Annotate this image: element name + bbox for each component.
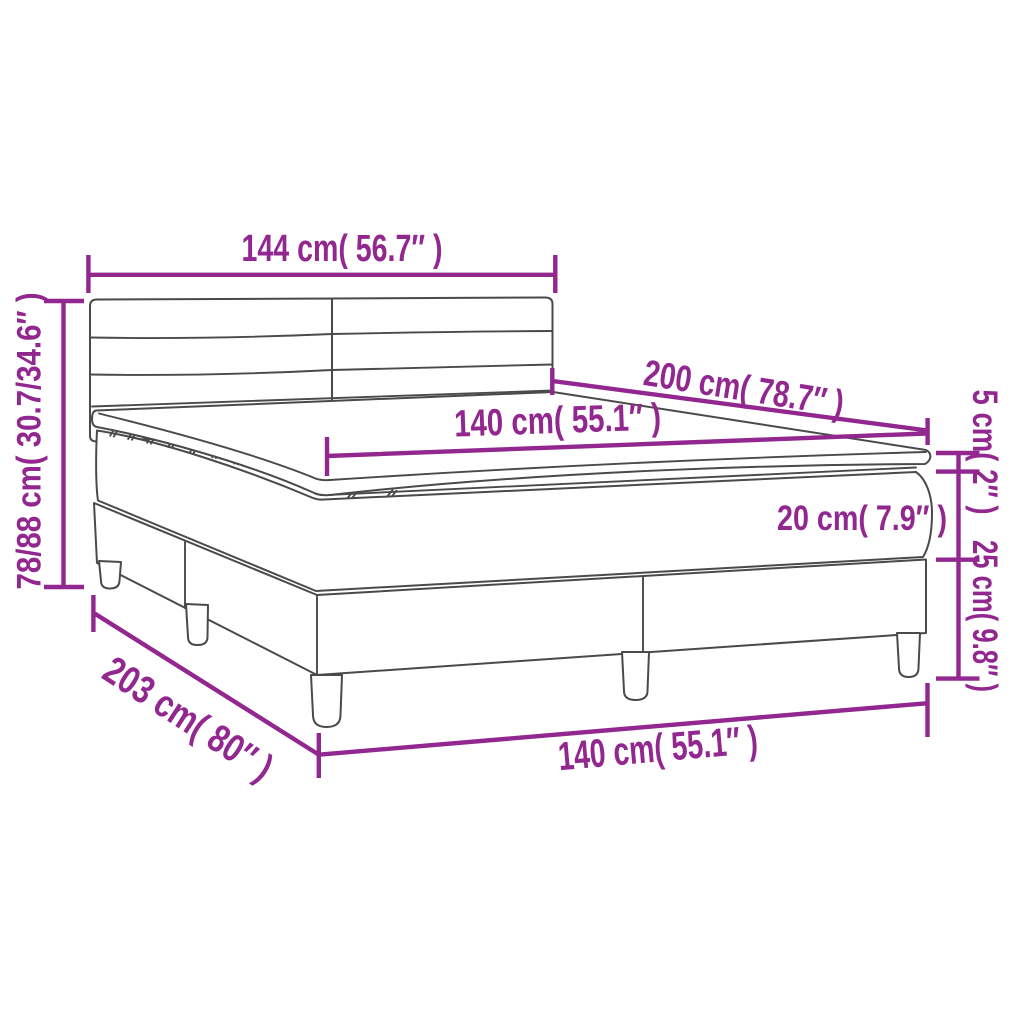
svg-text:144 cm( 56.7″ ): 144 cm( 56.7″ )	[242, 228, 443, 270]
svg-text:78/88 cm( 30.7/34.6″ ): 78/88 cm( 30.7/34.6″ )	[10, 293, 48, 590]
svg-text:25 cm( 9.8″ ): 25 cm( 9.8″ )	[965, 540, 1004, 692]
svg-text:5 cm( 2″ ): 5 cm( 2″ )	[965, 390, 1004, 515]
svg-text:140 cm( 55.1″ ): 140 cm( 55.1″ )	[453, 396, 661, 445]
svg-text:20 cm( 7.9″ ): 20 cm( 7.9″ )	[777, 499, 947, 538]
